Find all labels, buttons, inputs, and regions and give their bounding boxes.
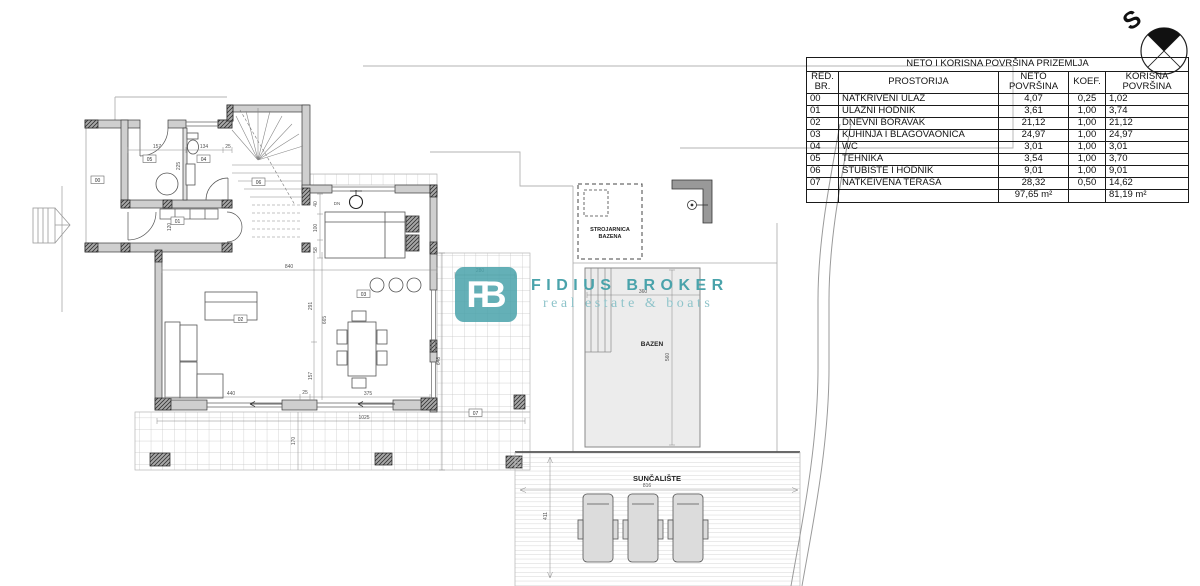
table-row: 07NATKEIVENA TERASA 28,320,50 14,62	[807, 177, 1189, 189]
stairs-dn-label: DN	[334, 201, 341, 206]
exterior-stairs-icon	[33, 208, 70, 243]
pool-zone	[573, 180, 777, 452]
closet	[160, 209, 218, 219]
svg-text:04: 04	[201, 157, 207, 163]
dim: 665	[322, 316, 328, 325]
dim: 225	[176, 162, 182, 171]
washer-icon	[156, 173, 178, 195]
fidius-logo-badge: FB	[455, 267, 517, 322]
sofa	[165, 322, 223, 398]
table-row: 03KUHINJA I BLAGOVAONICA 24,971,00 24,97	[807, 129, 1189, 141]
toilet-icon	[188, 140, 199, 154]
col-header-red-br: RED. BR.	[807, 72, 839, 94]
sundeck	[515, 452, 800, 586]
dim: 25	[302, 390, 308, 396]
sundeck-label: SUNČALIŠTE	[633, 474, 681, 483]
dim: 40	[313, 201, 319, 207]
col-header-neto: NETO POVRŠINA	[999, 72, 1069, 94]
coffee-table	[205, 292, 257, 320]
room-tag-00: 00	[91, 176, 104, 184]
sink-icon	[186, 164, 195, 185]
svg-text:06: 06	[256, 180, 262, 186]
dim: 440	[227, 391, 236, 397]
table-totals-row: 97,65 m² 81,19 m²	[807, 189, 1189, 202]
pool-machine-room	[578, 184, 642, 259]
table-title-row: NETO I KORISNA POVRŠINA PRIZEMLJA	[807, 58, 1189, 72]
l-wall	[672, 180, 712, 223]
total-korisna: 81,19 m²	[1106, 189, 1189, 202]
svg-text:07: 07	[473, 411, 479, 417]
pool-machine-label-2: BAZENA	[599, 234, 622, 240]
room-tag-04: 04	[197, 155, 210, 163]
dim: 25	[225, 144, 231, 150]
svg-text:01: 01	[175, 219, 181, 225]
dining-set	[337, 311, 387, 388]
fidius-monogram: FB	[466, 276, 497, 313]
sun-loungers	[578, 494, 708, 562]
dim: 560	[665, 353, 671, 362]
col-header-korisna: KORISNA POVRŠINA	[1106, 72, 1189, 94]
col-header-prostorija: PROSTORIJA	[839, 72, 999, 94]
dim: 291	[308, 302, 314, 311]
table-row: 05TEHNIKA 3,541,00 3,70	[807, 153, 1189, 165]
dim: 134	[200, 144, 209, 150]
room-tag-02: 02	[234, 315, 247, 323]
dim: 100	[313, 224, 319, 233]
dim: 1025	[358, 415, 369, 421]
room-tag-06: 06	[252, 178, 265, 186]
room-tag-01: 01	[171, 217, 184, 225]
dim: 840	[285, 264, 294, 270]
dim: 157	[308, 372, 314, 381]
dim: 375	[364, 391, 373, 397]
table-header-row: RED. BR. PROSTORIJA NETO POVRŠINA KOEF. …	[807, 72, 1189, 94]
col-header-koef: KOEF.	[1069, 72, 1106, 94]
total-neto: 97,65 m²	[999, 189, 1069, 202]
slide-arrows	[250, 402, 395, 407]
dim: 816	[643, 483, 652, 489]
dim: 648	[436, 357, 442, 366]
room-tag-05: 05	[143, 155, 156, 163]
room-tag-07: 07	[469, 409, 482, 417]
table-title: NETO I KORISNA POVRŠINA PRIZEMLJA	[807, 58, 1189, 72]
pool-machine-label-1: STROJARNICA	[590, 227, 630, 233]
svg-text:03: 03	[361, 292, 367, 298]
room-tag-03: 03	[357, 290, 370, 298]
svg-text:02: 02	[238, 317, 244, 323]
table-row: 01ULAZNI HODNIK 3,611,00 3,74	[807, 105, 1189, 117]
table-row: 06STUBIŠTE I HODNIK 9,011,00 9,01	[807, 165, 1189, 177]
areas-table: NETO I KORISNA POVRŠINA PRIZEMLJA RED. B…	[806, 57, 1189, 203]
fidius-logo-tagline: real estate & boats	[543, 296, 713, 312]
svg-text:00: 00	[95, 178, 101, 184]
dim: 411	[543, 512, 549, 520]
svg-text:05: 05	[147, 157, 153, 163]
room-tags: 00 01 02 03 04 05 06 07	[91, 155, 482, 417]
dim: 58	[313, 247, 319, 253]
staircase	[232, 108, 303, 237]
floor-plan-sheet: 157 134 25 225 120 840 40 100 58 291 157…	[0, 0, 1200, 586]
fidius-logo-name: FIDIUS BROKER	[531, 277, 729, 295]
bar-stools	[370, 278, 421, 292]
table-row: 02DNEVNI BORAVAK 21,121,00 21,12	[807, 117, 1189, 129]
table-row: 00NATKRIVENI ULAZ 4,070,25 1,02	[807, 93, 1189, 105]
dining-table	[348, 322, 376, 376]
pool-label: BAZEN	[641, 341, 664, 348]
walls	[85, 105, 437, 412]
table-row: 04WC 3,011,00 3,01	[807, 141, 1189, 153]
windows	[186, 122, 436, 407]
dim: 157	[153, 144, 162, 150]
dim: 170	[291, 437, 297, 446]
compass-letter: S	[1118, 5, 1147, 36]
